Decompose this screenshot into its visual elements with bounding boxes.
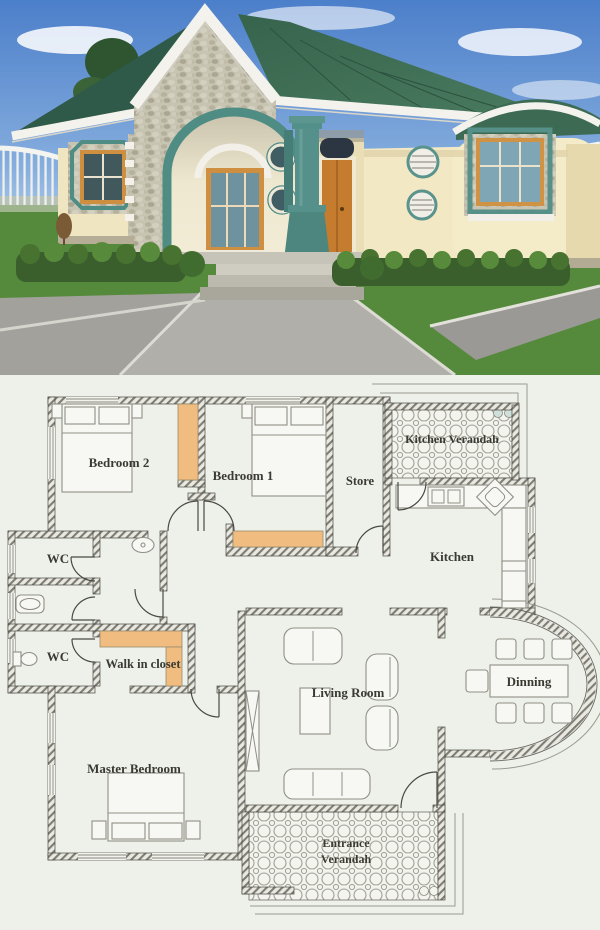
porch-window bbox=[202, 168, 268, 256]
room-label-wc-upper: WC bbox=[47, 551, 69, 566]
room-label-master-bedroom: Master Bedroom bbox=[87, 761, 181, 776]
wardrobe-bedroom2 bbox=[178, 404, 198, 480]
stove-icon bbox=[428, 487, 464, 506]
right-wall-shade bbox=[566, 144, 600, 266]
fridge-icon bbox=[502, 561, 526, 601]
entrance-verandah-pot-2 bbox=[430, 887, 439, 896]
room-label-kitchen: Kitchen bbox=[430, 549, 475, 564]
circular-window-lower bbox=[408, 191, 436, 219]
house-render-svg bbox=[0, 0, 600, 375]
armchair-2 bbox=[366, 706, 398, 750]
room-label-entrance-verandah-line1: Entrance bbox=[322, 836, 370, 850]
wardrobe-closet-h bbox=[100, 631, 182, 647]
turret-window bbox=[464, 130, 556, 221]
house-render-photo bbox=[0, 0, 600, 375]
room-label-walk-in-closet: Walk in closet bbox=[105, 657, 181, 671]
room-label-living-room: Living Room bbox=[312, 685, 385, 700]
floor-plan-svg: Bedroom 2 Bedroom 1 Store Kitchen Verand… bbox=[0, 375, 600, 930]
bed-bedroom2 bbox=[52, 404, 142, 492]
bed-master bbox=[92, 773, 200, 841]
sofa-bottom bbox=[284, 769, 370, 799]
bush-left-of-steps bbox=[179, 251, 205, 277]
bush-right-of-steps bbox=[360, 256, 384, 280]
room-label-bedroom1: Bedroom 1 bbox=[213, 468, 274, 483]
room-label-dinning: Dinning bbox=[507, 674, 552, 689]
floor-plan: Bedroom 2 Bedroom 1 Store Kitchen Verand… bbox=[0, 375, 600, 930]
left-window bbox=[80, 150, 126, 204]
room-label-entrance-verandah-line2: Verandah bbox=[321, 852, 372, 866]
circular-window-upper bbox=[408, 147, 438, 177]
room-label-kitchen-verandah: Kitchen Verandah bbox=[405, 432, 499, 446]
room-label-wc-lower: WC bbox=[47, 649, 69, 664]
wardrobe-bedroom1 bbox=[233, 531, 323, 547]
wash-basin bbox=[132, 538, 154, 553]
toilet bbox=[13, 652, 37, 666]
sofa-top bbox=[284, 628, 342, 664]
room-label-bedroom2: Bedroom 2 bbox=[89, 455, 150, 470]
room-label-store: Store bbox=[346, 474, 375, 488]
entrance-verandah-pot-1 bbox=[420, 887, 429, 896]
tv-console bbox=[246, 691, 259, 771]
bathtub bbox=[16, 595, 44, 613]
